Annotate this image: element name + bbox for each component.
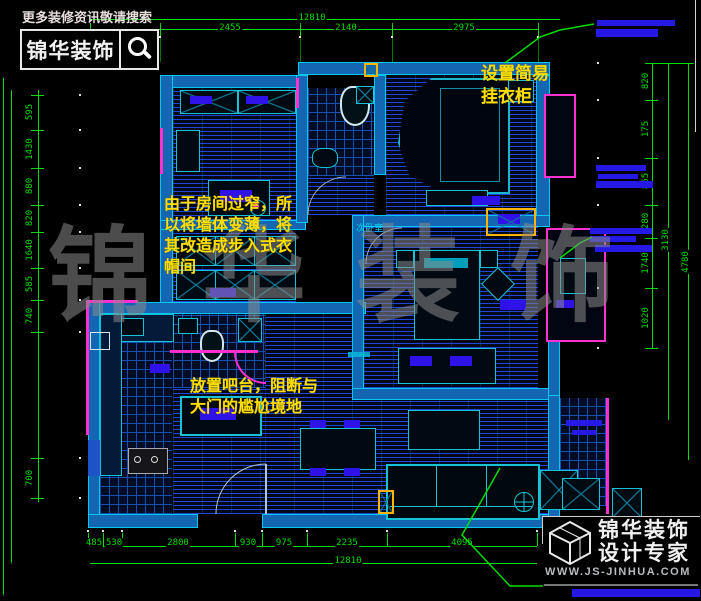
hall-top-floor xyxy=(308,176,374,215)
dim-tick xyxy=(537,533,538,546)
highlight-cabinet xyxy=(486,208,536,236)
footer-brand-line1: 锦华装饰 xyxy=(598,519,690,542)
window-accent xyxy=(160,128,163,174)
nightstand xyxy=(396,250,414,268)
ceiling-vent xyxy=(150,364,170,373)
dim-endpoint-dot xyxy=(234,530,236,532)
dim-tick xyxy=(31,300,44,301)
dim-label: 880 xyxy=(25,177,35,195)
dim-endpoint-dot xyxy=(597,62,599,64)
cad-note-bar xyxy=(596,165,646,171)
washer xyxy=(238,318,262,342)
dim-label: 820 xyxy=(641,72,651,90)
dim-endpoint-dot xyxy=(597,287,599,289)
dim-endpoint-dot xyxy=(79,167,81,169)
dim-endpoint-dot xyxy=(306,530,308,532)
dim-tick xyxy=(31,168,44,169)
annotation-line: 大门的尴尬境地 xyxy=(190,397,318,418)
dim-endpoint-dot xyxy=(597,347,599,349)
dining-chair xyxy=(310,468,326,476)
dim-label: 4095 xyxy=(450,538,474,548)
dim-label: 2235 xyxy=(335,538,359,548)
room-label-secondary-bedroom: 次卧室 xyxy=(356,221,383,234)
dim-label: 2140 xyxy=(334,23,358,33)
marker-box xyxy=(378,490,394,514)
balcony-table xyxy=(560,258,586,294)
annotation-line: 设置简易 xyxy=(481,62,549,85)
dim-endpoint-dot xyxy=(159,36,161,38)
bed-pillow xyxy=(424,258,468,268)
dim-endpoint-dot xyxy=(79,129,81,131)
exhaust-fan xyxy=(356,86,374,104)
cube-logo-icon xyxy=(545,519,595,567)
brand-search-box: 锦华装饰 xyxy=(20,29,159,70)
footer-brand-line2: 设计专家 xyxy=(598,542,690,565)
wall xyxy=(548,336,560,396)
cad-note-bar xyxy=(596,181,653,188)
nightstand xyxy=(176,130,200,172)
annotation-walkin-closet: 由于房间过窄，所 以将墙体变薄，将 其改造成步入式衣 帽间 xyxy=(164,194,292,278)
frame-line xyxy=(695,0,696,132)
dim-tick xyxy=(262,533,263,546)
window-accent xyxy=(86,300,89,435)
dim-endpoint-dot xyxy=(87,530,89,532)
footer-blue-bar xyxy=(572,589,700,597)
dining-chair xyxy=(310,420,326,428)
dim-tick xyxy=(645,205,658,206)
window-accent xyxy=(296,78,299,108)
annotation-line: 挂衣柜 xyxy=(481,85,549,108)
dim-endpoint-dot xyxy=(597,99,599,101)
dim-tick xyxy=(387,533,388,546)
ceiling-vent xyxy=(556,300,574,308)
annotation-line: 放置吧台，阻断与 xyxy=(190,376,318,397)
dim-line-bottom-total xyxy=(90,563,537,564)
dim-tick xyxy=(645,63,658,64)
ceiling-vent xyxy=(472,196,500,205)
dim-label: 1640 xyxy=(25,238,35,262)
wall xyxy=(352,388,558,400)
dim-line-left-outer xyxy=(3,78,4,595)
annotation-bar-counter: 放置吧台，阻断与 大门的尴尬境地 xyxy=(190,376,318,418)
cad-floorplan-canvas: 更多装修资讯敬请搜索 锦华装饰 xyxy=(0,0,701,601)
dim-line-left-mid xyxy=(11,90,12,563)
dresser-item xyxy=(410,356,432,366)
dim-endpoint-dot xyxy=(102,530,104,532)
annotation-line: 其改造成步入式衣 xyxy=(164,236,292,257)
dim-label: 12810 xyxy=(333,556,362,566)
dim-tick xyxy=(538,38,539,62)
search-tagline: 更多装修资讯敬请搜索 xyxy=(22,7,152,26)
dim-tick xyxy=(160,23,161,37)
dim-endpoint-dot xyxy=(536,530,538,532)
dim-endpoint-dot xyxy=(79,267,81,269)
dining-table xyxy=(300,428,376,470)
dim-label: 2975 xyxy=(452,23,476,33)
marker-box xyxy=(364,63,378,77)
dim-label: 4780 xyxy=(681,250,691,274)
dim-label: 1740 xyxy=(641,251,651,275)
dim-label: 485 xyxy=(85,538,103,548)
ceiling-vent xyxy=(210,288,236,297)
ceiling-vent xyxy=(246,96,268,104)
sofa xyxy=(386,464,540,520)
footer-logo-block: 锦华装饰 设计专家 WWW.JS-JINHUA.COM xyxy=(543,517,701,601)
dim-label: 12810 xyxy=(297,13,326,23)
dim-endpoint-dot xyxy=(79,299,81,301)
sofa-backrest xyxy=(390,506,532,507)
balcony-rail-accent xyxy=(606,398,609,514)
dim-tick xyxy=(103,533,104,546)
stove xyxy=(128,448,168,474)
sofa-divider xyxy=(486,466,487,506)
wall xyxy=(88,302,366,314)
dim-tick xyxy=(300,23,301,37)
dining-chair xyxy=(344,420,360,428)
dim-label: 975 xyxy=(275,538,293,548)
footer-website: WWW.JS-JINHUA.COM xyxy=(545,566,691,578)
dim-label: 740 xyxy=(25,307,35,325)
wall xyxy=(160,75,306,88)
dim-label: 2455 xyxy=(218,23,242,33)
dim-tick xyxy=(645,100,658,101)
dim-tick xyxy=(300,38,301,62)
dresser xyxy=(398,348,496,384)
dim-tick xyxy=(31,458,44,459)
dim-endpoint-dot xyxy=(597,204,599,206)
tiny-label-bar xyxy=(348,352,370,357)
dim-label: 2800 xyxy=(166,538,190,548)
cad-note-bar xyxy=(597,20,675,26)
dim-endpoint-dot xyxy=(79,94,81,96)
washer xyxy=(562,478,600,510)
brand-name: 锦华装饰 xyxy=(22,31,119,68)
dim-tick xyxy=(31,268,44,269)
dim-tick xyxy=(645,158,658,159)
burner xyxy=(134,456,141,463)
footer-separator xyxy=(544,584,698,586)
cad-note-bar xyxy=(590,236,636,242)
annotation-line: 由于房间过窄，所 xyxy=(164,194,292,215)
tiny-label-bar xyxy=(566,420,602,426)
dim-label: 930 xyxy=(239,538,257,548)
ceiling-vent xyxy=(190,96,212,104)
nightstand xyxy=(480,250,498,268)
cad-note-bar xyxy=(596,29,658,37)
dim-endpoint-dot xyxy=(299,36,301,38)
dim-line-left-chain xyxy=(38,90,39,502)
dim-tick xyxy=(160,38,161,62)
washbasin xyxy=(312,148,338,168)
appliance xyxy=(90,332,110,350)
dim-tick xyxy=(392,23,393,37)
ceiling-vent xyxy=(500,300,526,310)
dim-endpoint-dot xyxy=(386,530,388,532)
sofa-divider xyxy=(436,466,437,506)
dim-endpoint-dot xyxy=(79,457,81,459)
search-handle-icon xyxy=(143,50,152,59)
dim-tick xyxy=(307,533,308,546)
cad-note-bar xyxy=(598,174,638,179)
footer-brand: 锦华装饰 设计专家 xyxy=(598,519,690,565)
dim-label: 1430 xyxy=(25,137,35,161)
wall xyxy=(88,514,198,528)
dim-endpoint-dot xyxy=(261,530,263,532)
coffee-table xyxy=(408,410,480,450)
dim-tick xyxy=(31,130,44,131)
annotation-line: 以将墙体变薄，将 xyxy=(164,215,292,236)
dim-tick xyxy=(235,533,236,546)
dim-endpoint-dot xyxy=(537,36,539,38)
window-accent xyxy=(86,300,138,303)
dim-endpoint-dot xyxy=(79,497,81,499)
annotation-line: 帽间 xyxy=(164,257,292,278)
dresser-item xyxy=(450,356,472,366)
dim-tick xyxy=(645,348,658,349)
cad-note-bar xyxy=(595,245,652,252)
dim-label: 3130 xyxy=(661,228,671,252)
dim-tick xyxy=(31,498,44,499)
washbasin xyxy=(178,318,198,334)
dim-tick xyxy=(392,38,393,62)
dim-label: 585 xyxy=(25,275,35,293)
dim-tick xyxy=(538,23,539,37)
dim-tick xyxy=(31,332,44,333)
dim-tick xyxy=(645,288,658,289)
dim-endpoint-dot xyxy=(79,231,81,233)
dim-label: 700 xyxy=(25,469,35,487)
dim-endpoint-dot xyxy=(391,36,393,38)
dim-tick xyxy=(31,232,44,233)
dim-endpoint-dot xyxy=(79,331,81,333)
dim-endpoint-dot xyxy=(121,530,123,532)
floor-drain xyxy=(514,492,534,512)
tiny-label-bar xyxy=(572,430,596,435)
wall xyxy=(374,75,386,175)
dim-endpoint-dot xyxy=(597,157,599,159)
annotation-coat-rack: 设置简易 挂衣柜 xyxy=(481,62,549,108)
dim-label: 530 xyxy=(105,538,123,548)
dim-label: 595 xyxy=(25,103,35,121)
dim-tick xyxy=(31,205,44,206)
dining-chair xyxy=(344,468,360,476)
dim-label: 1020 xyxy=(641,306,651,330)
search-icon xyxy=(119,31,157,68)
wall xyxy=(352,215,364,395)
dim-label: 820 xyxy=(25,209,35,227)
dim-label: 175 xyxy=(641,120,651,138)
dim-tick xyxy=(31,95,44,96)
dim-tick xyxy=(645,238,658,239)
ac-unit xyxy=(612,488,642,518)
cad-note-bar xyxy=(590,228,652,234)
dim-endpoint-dot xyxy=(79,204,81,206)
toilet xyxy=(200,330,224,362)
burner xyxy=(151,456,158,463)
